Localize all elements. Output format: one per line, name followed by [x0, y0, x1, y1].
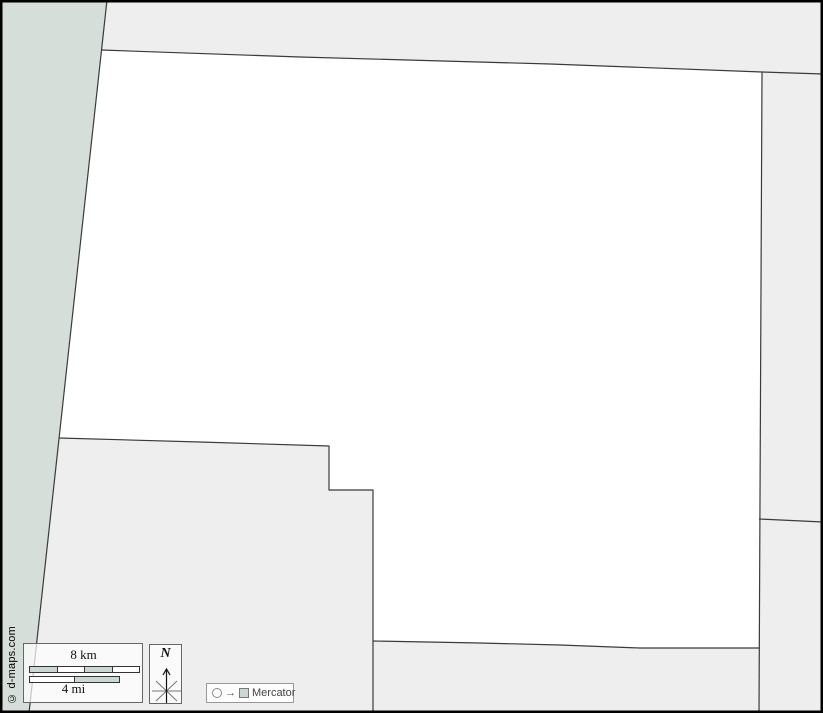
scale-bar-box: 8 km 4 mi [23, 643, 143, 703]
arrow-right-icon: → [225, 688, 236, 699]
scale-km-segment [112, 667, 140, 672]
projection-name-label: Mercator [252, 687, 295, 699]
map-canvas: 8 km 4 mi N → [0, 0, 823, 713]
scale-km-label: 8 km [29, 647, 138, 663]
copyright-attribution: © d-maps.com [6, 622, 18, 708]
scale-km-bar [29, 666, 140, 673]
scale-km-segment [30, 667, 57, 672]
compass-box: N [149, 644, 182, 704]
compass-north-label: N [150, 646, 181, 662]
scale-mi-label: 4 mi [29, 681, 118, 697]
base-map-svg [0, 0, 823, 713]
globe-circle-icon [212, 688, 222, 698]
projected-square-icon [239, 688, 249, 698]
compass-star-icon [150, 663, 183, 705]
scale-km-segment [84, 667, 112, 672]
projection-box: → Mercator [206, 683, 294, 703]
scale-km-segment [57, 667, 85, 672]
